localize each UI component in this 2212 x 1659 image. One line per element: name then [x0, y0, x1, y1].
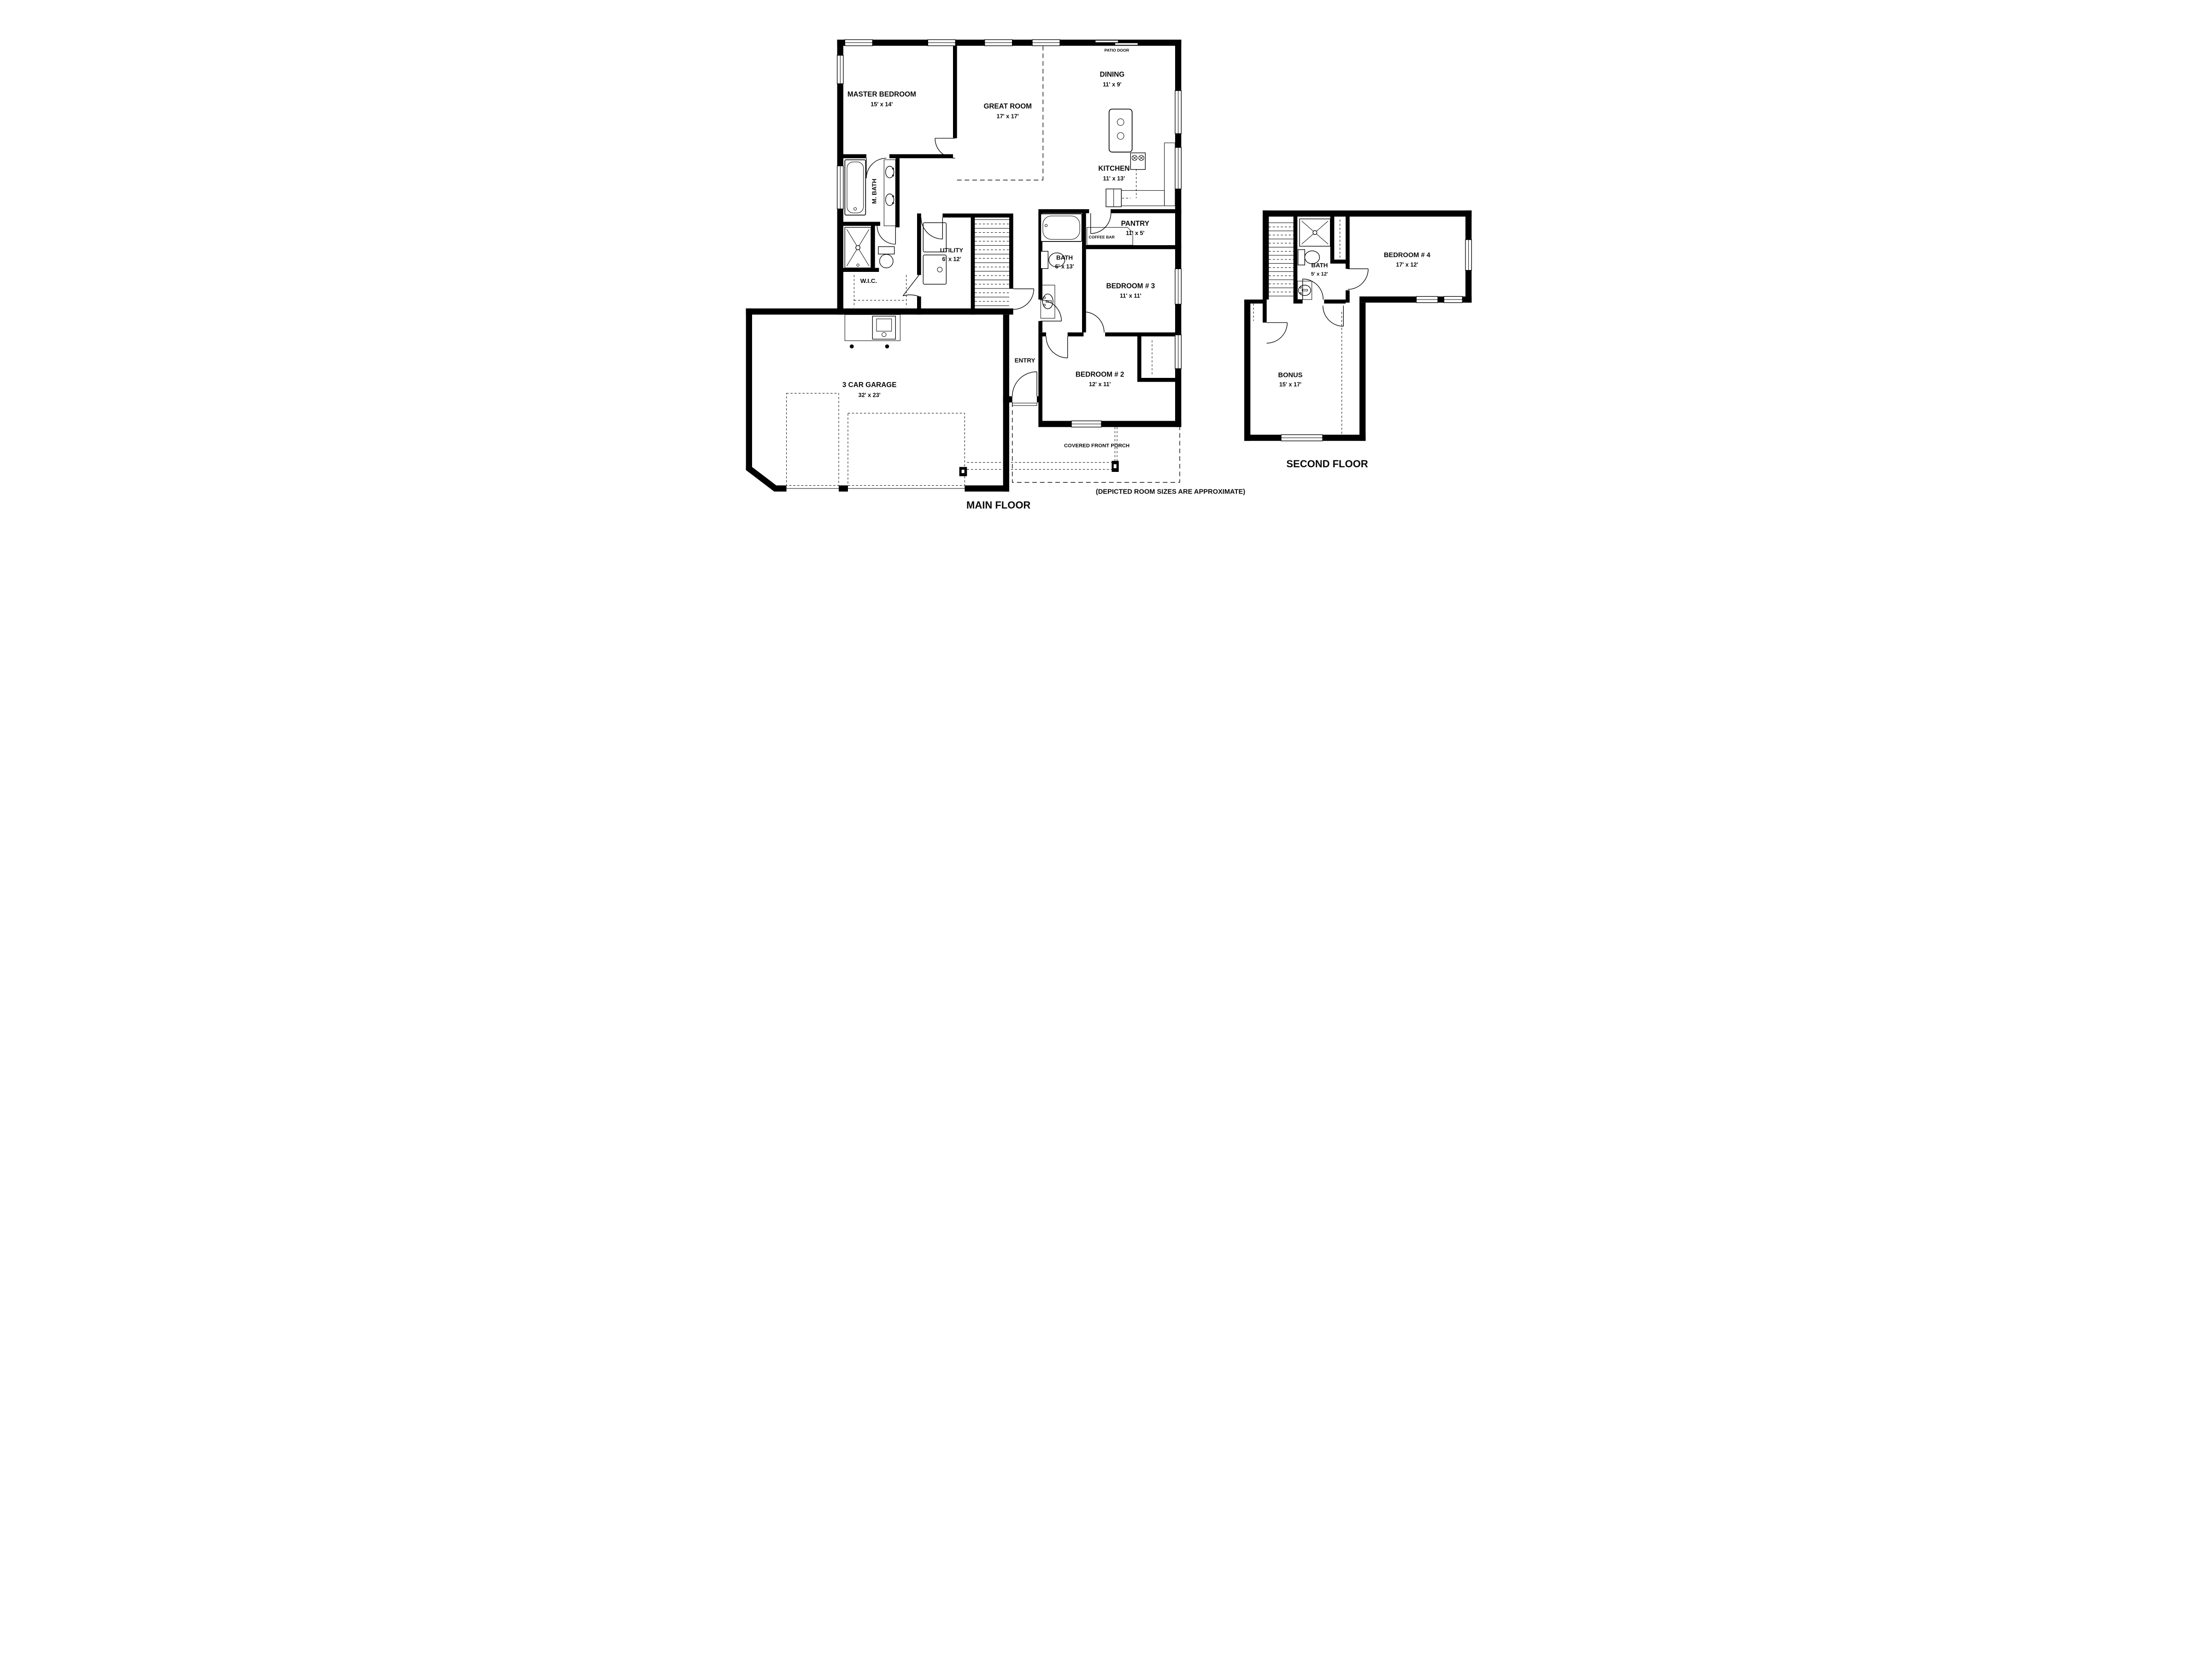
shower2-icon [1300, 219, 1330, 246]
room-size-bedroom-4: 17' x 12' [1396, 262, 1418, 268]
door-bed2 [1046, 336, 1068, 358]
door-pantry [1091, 213, 1111, 234]
window-icons-second [1281, 240, 1471, 441]
main-floor-plan: MASTER BEDROOM 15' x 14' GREAT ROOM 17' … [746, 40, 1246, 511]
room-label-dining: DINING [1100, 71, 1125, 79]
door-stairs [1013, 289, 1034, 310]
room-size-master-bedroom: 15' x 14' [871, 101, 893, 108]
room-label-porch: COVERED FRONT PORCH [1064, 443, 1130, 449]
stairs-icon-main [975, 220, 1009, 306]
second-floor-plan: BATH 5' x 12' BEDROOM # 4 17' x 12' BONU… [1244, 211, 1471, 470]
room-label-wic: W.I.C. [860, 277, 877, 284]
post-dot [885, 344, 889, 348]
room-size-bath2: 5' x 12' [1311, 271, 1328, 277]
annotation-patio-door: PATIO DOOR [1105, 48, 1130, 53]
bathtub2-icon [1041, 214, 1082, 241]
porch-column-icon [1112, 461, 1118, 472]
room-size-great-room: 17' x 17' [997, 113, 1019, 120]
range-icon [1130, 153, 1145, 170]
covered-porch-outline [959, 402, 1180, 482]
kitchen-island-icon [1109, 109, 1132, 152]
vanity2-icon [1297, 281, 1312, 300]
door-bed4 [1347, 269, 1368, 289]
second-exterior-walls [1244, 211, 1471, 441]
door-mbath [866, 158, 886, 178]
toilet-icon [878, 247, 894, 268]
room-size-bonus: 15' x 17' [1279, 382, 1301, 388]
room-label-great-room: GREAT ROOM [983, 102, 1031, 110]
room-size-dining: 11' x 9' [1103, 81, 1122, 88]
room-label-utility: UTILITY [940, 247, 963, 253]
room-label-bedroom-3: BEDROOM # 3 [1106, 282, 1155, 290]
second-floor-title: SECOND FLOOR [1286, 458, 1368, 470]
bathtub-icon [845, 160, 865, 215]
room-size-kitchen: 11' x 13' [1103, 175, 1125, 182]
room-size-garage: 32' x 23' [859, 392, 881, 398]
stairs-icon-second [1269, 223, 1293, 296]
room-size-utility: 6' x 12' [942, 256, 961, 263]
door-front [1012, 372, 1037, 396]
room-size-pantry: 11' x 5' [1126, 230, 1145, 236]
room-label-bonus: BONUS [1278, 372, 1303, 379]
room-label-entry: ENTRY [1015, 357, 1035, 364]
refrigerator-icon [1106, 189, 1121, 207]
room-label-bath: BATH [1056, 254, 1073, 261]
door-bonus [1323, 306, 1344, 326]
porch-column-icon [959, 467, 967, 476]
room-size-bedroom-3: 11' x 11' [1120, 293, 1141, 299]
floor-plan-image: MASTER BEDROOM 15' x 14' GREAT ROOM 17' … [737, 0, 1475, 553]
room-size-bedroom-2: 12' x 11' [1089, 381, 1111, 388]
room-label-bedroom-2: BEDROOM # 2 [1076, 371, 1124, 378]
main-floor-labels: MASTER BEDROOM 15' x 14' GREAT ROOM 17' … [842, 48, 1245, 511]
door-bed3 [1083, 312, 1104, 333]
annotation-coffee-bar: COFFEE BAR [1089, 235, 1115, 239]
door-bonus-closet [1267, 323, 1288, 343]
door-wic [903, 275, 919, 297]
footnote: (DEPICTED ROOM SIZES ARE APPROXIMATE) [1096, 488, 1245, 496]
room-label-master-bedroom: MASTER BEDROOM [847, 90, 916, 98]
double-vanity-icon [884, 160, 895, 226]
room-label-pantry: PANTRY [1121, 220, 1149, 228]
room-size-bath: 6' x 13' [1055, 264, 1074, 270]
room-label-bedroom-4: BEDROOM # 4 [1384, 252, 1431, 259]
main-floor-title: MAIN FLOOR [966, 499, 1030, 511]
room-label-garage: 3 CAR GARAGE [842, 381, 897, 389]
room-label-bath2: BATH [1311, 262, 1328, 269]
floor-plan-page: MASTER BEDROOM 15' x 14' GREAT ROOM 17' … [737, 0, 1475, 553]
entry-step [1012, 403, 1037, 406]
vanity-icon [1041, 285, 1055, 318]
room-label-kitchen: KITCHEN [1098, 165, 1130, 173]
door-swings-second [1267, 269, 1368, 343]
main-exterior-walls [746, 40, 1182, 492]
post-dot [850, 344, 854, 348]
shower-icon [845, 227, 871, 268]
furnace-water-heater [845, 315, 900, 348]
door-swings-main [866, 138, 1111, 396]
room-label-m-bath: M. BATH [871, 179, 878, 204]
garage-door-bays [787, 393, 965, 485]
door-shower-room [877, 226, 895, 244]
